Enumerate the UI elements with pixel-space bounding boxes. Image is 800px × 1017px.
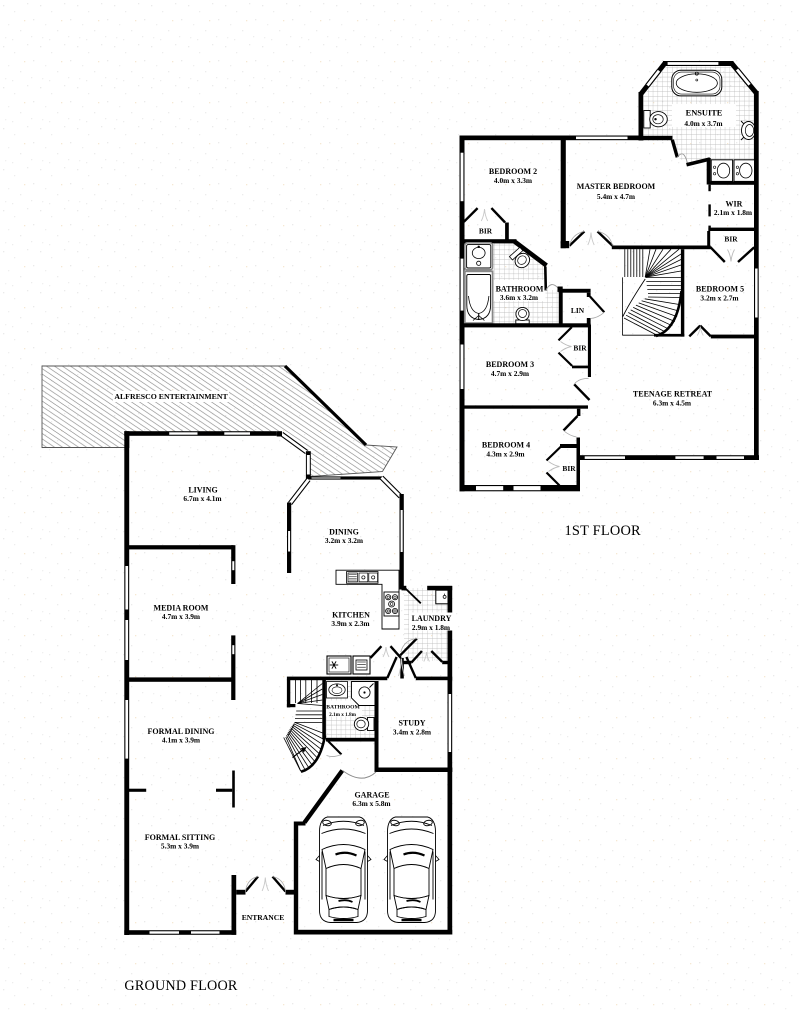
svg-text:6.3m x 5.8m: 6.3m x 5.8m: [352, 799, 391, 808]
svg-text:ENSUITE: ENSUITE: [686, 108, 723, 117]
svg-text:BIR: BIR: [573, 344, 587, 353]
svg-text:2.9m x 1.8m: 2.9m x 1.8m: [412, 623, 451, 632]
svg-text:BIR: BIR: [724, 235, 738, 244]
svg-text:2.1m x 1.8m: 2.1m x 1.8m: [329, 712, 356, 718]
svg-text:1ST FLOOR: 1ST FLOOR: [565, 523, 642, 539]
svg-text:BATHROOM: BATHROOM: [326, 704, 360, 710]
svg-text:LAUNDRY: LAUNDRY: [412, 614, 452, 623]
svg-text:BIR: BIR: [479, 227, 493, 236]
svg-text:STUDY: STUDY: [398, 719, 425, 728]
svg-text:3.6m x 3.2m: 3.6m x 3.2m: [500, 293, 539, 302]
svg-text:LIN: LIN: [571, 306, 585, 315]
svg-text:BEDROOM 5: BEDROOM 5: [696, 285, 744, 294]
svg-text:4.7m x 3.9m: 4.7m x 3.9m: [162, 612, 201, 621]
svg-text:3.4m x 2.8m: 3.4m x 2.8m: [393, 728, 432, 737]
svg-text:4.7m x 2.9m: 4.7m x 2.9m: [491, 369, 530, 378]
svg-text:ENTRANCE: ENTRANCE: [242, 913, 285, 922]
svg-text:4.3m x 2.9m: 4.3m x 2.9m: [486, 450, 525, 459]
svg-text:2.1m x 1.8m: 2.1m x 1.8m: [714, 208, 753, 217]
svg-text:6.3m x 4.5m: 6.3m x 4.5m: [653, 399, 692, 408]
svg-text:BIR: BIR: [562, 464, 576, 473]
svg-text:4.0m x 3.3m: 4.0m x 3.3m: [494, 176, 533, 185]
svg-text:ALFRESCO ENTERTAINMENT: ALFRESCO ENTERTAINMENT: [114, 392, 228, 401]
svg-text:BEDROOM 3: BEDROOM 3: [486, 360, 534, 369]
svg-text:3.2m x 2.7m: 3.2m x 2.7m: [700, 294, 739, 303]
svg-text:4.0m x 3.7m: 4.0m x 3.7m: [684, 119, 723, 128]
svg-text:4.1m x 3.9m: 4.1m x 3.9m: [162, 736, 201, 745]
svg-text:GROUND FLOOR: GROUND FLOOR: [124, 978, 237, 994]
svg-text:3.9m x 2.3m: 3.9m x 2.3m: [331, 619, 370, 628]
svg-text:MASTER BEDROOM: MASTER BEDROOM: [577, 182, 656, 191]
svg-text:5.4m x 4.7m: 5.4m x 4.7m: [597, 192, 636, 201]
svg-text:BEDROOM 2: BEDROOM 2: [489, 167, 537, 176]
svg-text:BEDROOM 4: BEDROOM 4: [482, 441, 530, 450]
svg-text:3.2m x 3.2m: 3.2m x 3.2m: [325, 536, 364, 545]
svg-text:TEENAGE RETREAT: TEENAGE RETREAT: [633, 390, 713, 399]
svg-text:6.7m x 4.1m: 6.7m x 4.1m: [183, 494, 222, 503]
svg-text:5.3m x 3.9m: 5.3m x 3.9m: [161, 842, 200, 851]
